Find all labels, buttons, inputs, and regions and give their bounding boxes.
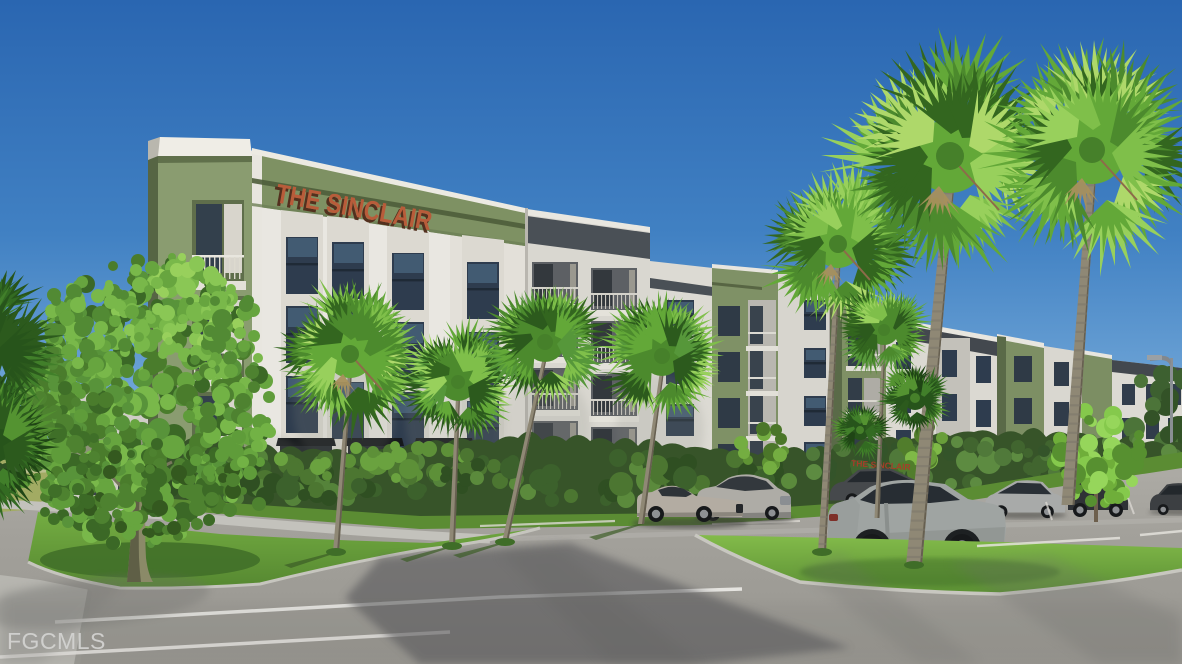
svg-text:FGCMLS: FGCMLS	[7, 628, 106, 654]
